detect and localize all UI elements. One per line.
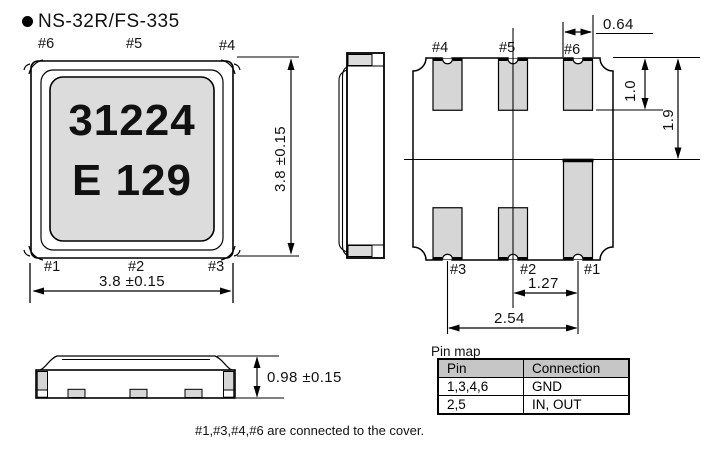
front-view-right-terminal-base xyxy=(224,390,234,397)
front-view-right-terminal xyxy=(224,372,234,391)
bottom-view-pin-3-label: #3 xyxy=(450,262,466,278)
dim-height-text: 3.8 ±0.15 xyxy=(272,126,289,192)
pin-map-cell-connection: GND xyxy=(524,378,630,396)
side-view-cover-edge xyxy=(339,67,347,255)
side-view-bottom-terminal xyxy=(348,246,372,257)
pad-6 xyxy=(564,59,593,111)
front-view-left-terminal xyxy=(37,372,47,391)
top-view-pin-1-label: #1 xyxy=(44,259,60,275)
side-view-body xyxy=(347,53,384,258)
pin-map-header-pin: Pin xyxy=(438,359,524,378)
title-bullet-icon xyxy=(22,16,33,27)
dim-pad-width-text: 0.64 xyxy=(603,16,634,33)
bottom-view-pin-6-label: #6 xyxy=(564,42,580,58)
pad-3 xyxy=(433,208,462,260)
top-view-pin-4-label: #4 xyxy=(219,38,235,54)
bottom-view-pin-4-label: #4 xyxy=(432,40,448,56)
pad-4 xyxy=(433,59,462,111)
top-view-height-extension-lines xyxy=(237,57,299,256)
dim-width-text: 3.8 ±0.15 xyxy=(99,273,165,290)
pin-map-row-gnd: 1,3,4,6 GND xyxy=(438,378,629,396)
front-view-cover xyxy=(40,356,232,370)
top-view-pin-3-label: #3 xyxy=(208,259,224,275)
pin-map-row-inout: 2,5 IN, OUT xyxy=(438,396,629,415)
dim-corner-pad-length-text: 1.9 xyxy=(660,109,677,131)
bottom-view-pin-5-label: #5 xyxy=(499,40,515,56)
top-view-pin-5-label: #5 xyxy=(126,36,142,52)
datasheet-drawing-page: NS-32R/FS-335 #6 #5 #4 #1 #2 #3 31224 E … xyxy=(0,0,723,458)
pin-map-title: Pin map xyxy=(431,344,481,359)
pin-map-header-connection: Connection xyxy=(524,359,630,378)
front-view-bottom-pad-3 xyxy=(185,389,202,397)
dim-package-height-text: 0.98 ±0.15 xyxy=(267,369,342,386)
cover-connection-note: #1,#3,#4,#6 are connected to the cover. xyxy=(195,423,424,438)
pin-map-cell-connection: IN, OUT xyxy=(524,396,630,415)
front-view-bottom-pad-1 xyxy=(68,389,85,397)
bottom-view-pin-1-label: #1 xyxy=(584,262,600,278)
marking-line-1: 31224 xyxy=(50,96,214,146)
pin-map-cell-pins: 1,3,4,6 xyxy=(438,378,524,396)
front-view xyxy=(36,356,284,398)
dim-pad-length-text: 1.0 xyxy=(622,80,639,102)
pad-1 xyxy=(564,160,593,260)
pin-map-table: Pin Connection 1,3,4,6 GND 2,5 IN, OUT xyxy=(437,358,630,415)
front-view-left-terminal-base xyxy=(37,390,47,397)
dim-pitch-text: 1.27 xyxy=(528,275,559,292)
marking-line-2: E 129 xyxy=(50,156,214,206)
front-view-bottom-pad-2 xyxy=(130,389,147,397)
side-view xyxy=(339,53,384,258)
pin-map-header-row: Pin Connection xyxy=(438,359,629,378)
dim-span-text: 2.54 xyxy=(494,310,525,327)
top-view-pin-6-label: #6 xyxy=(38,36,54,52)
side-view-top-terminal xyxy=(348,55,372,66)
page-title: NS-32R/FS-335 xyxy=(38,11,180,33)
pin-map-cell-pins: 2,5 xyxy=(438,396,524,415)
